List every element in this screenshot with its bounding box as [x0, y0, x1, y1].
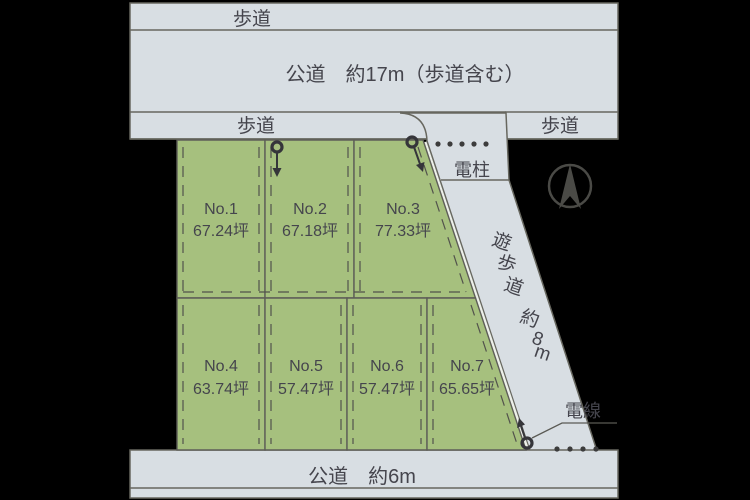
plot-no7-area: 65.65坪 [439, 380, 495, 398]
plot-no7-number: No.7 [450, 358, 484, 375]
mid-sidewalk-right-label: 歩道 [541, 115, 579, 137]
plot-no5-area: 57.47坪 [278, 380, 334, 398]
plot-no5-number: No.5 [289, 358, 323, 375]
land-plot-diagram: 歩道 公道 約17m（歩道含む） 歩道 歩道 公道 約6m 電柱 電線 遊 歩 … [0, 0, 750, 500]
top-sidewalk-label: 歩道 [233, 8, 271, 30]
plot-no3-area: 77.33坪 [375, 222, 431, 240]
power-line-label: 電線 [565, 401, 601, 421]
plot-no4-number: No.4 [204, 358, 238, 375]
plot-no3-number: No.3 [386, 201, 420, 218]
plot-no1 [177, 140, 265, 298]
plot-no2 [265, 140, 354, 298]
bottom-main-road-label: 公道 約6m [308, 465, 416, 488]
plot-no6-area: 57.47坪 [359, 380, 415, 398]
utility-pole-label: 電柱 [454, 160, 490, 180]
plot-no2-area: 67.18坪 [282, 222, 338, 240]
plot-no2-number: No.2 [293, 201, 327, 218]
plot-no4-area: 63.74坪 [193, 380, 249, 398]
diagram-canvas: 歩道 公道 約17m（歩道含む） 歩道 歩道 公道 約6m 電柱 電線 遊 歩 … [0, 0, 750, 500]
plot-no1-area: 67.24坪 [193, 222, 249, 240]
top-main-road-label: 公道 約17m（歩道含む） [286, 63, 525, 86]
plot-no6-number: No.6 [370, 358, 404, 375]
plot-no1-number: No.1 [204, 201, 238, 218]
mid-sidewalk-left-label: 歩道 [237, 115, 275, 137]
